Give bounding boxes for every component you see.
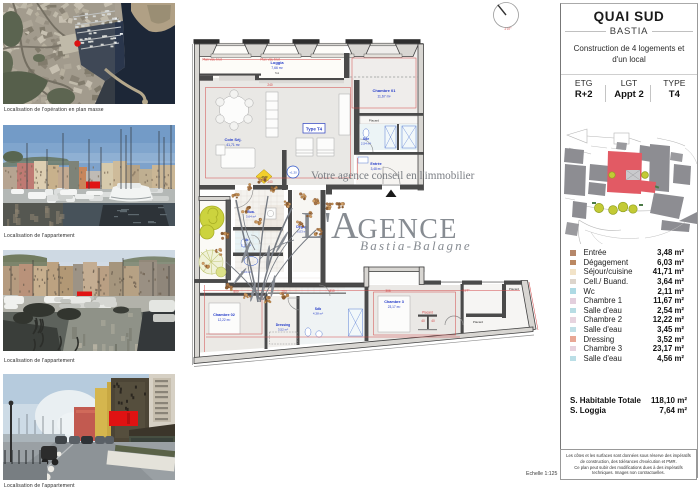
svg-text:306: 306 [385, 289, 391, 293]
svg-text:Sde: Sde [363, 137, 369, 141]
svg-text:7,66 m²: 7,66 m² [271, 66, 283, 70]
svg-text:800: 800 [233, 290, 239, 294]
svg-text:Chambre 3: Chambre 3 [384, 300, 404, 304]
svg-text:Placard: Placard [473, 320, 484, 324]
svg-text:Plan visu brut: Plan visu brut [202, 58, 221, 62]
svg-text:41,71 m²: 41,71 m² [226, 143, 240, 147]
svg-text:Coin Séj.: Coin Séj. [224, 137, 241, 142]
svg-text:Chambre 01: Chambre 01 [373, 88, 397, 93]
svg-text:40: 40 [421, 319, 425, 323]
svg-text:810: 810 [329, 289, 335, 293]
svg-text:40: 40 [431, 319, 435, 323]
svg-text:240: 240 [267, 180, 273, 184]
svg-text:23,17 m²: 23,17 m² [388, 305, 401, 309]
svg-text:Loggia: Loggia [270, 60, 284, 65]
svg-text:Bua.: Bua. [247, 210, 254, 214]
svg-text:Placard: Placard [509, 287, 520, 291]
svg-text:240: 240 [267, 83, 273, 87]
svg-text:3,52 m²: 3,52 m² [278, 328, 288, 332]
svg-text:21'7": 21'7" [462, 289, 469, 293]
svg-text:Type T4: Type T4 [306, 127, 323, 132]
svg-text:Placard: Placard [422, 311, 433, 315]
svg-text:3,64 m²: 3,64 m² [246, 215, 256, 219]
svg-text:Entrée: Entrée [370, 162, 381, 166]
svg-text:4,38 m²: 4,38 m² [313, 312, 323, 316]
svg-text:Chambre 02: Chambre 02 [213, 313, 235, 317]
svg-text:Sdb: Sdb [315, 307, 321, 311]
svg-text:12,22 m²: 12,22 m² [218, 318, 231, 322]
svg-text:Dressing: Dressing [276, 323, 291, 327]
svg-text:Bastia-Balagne: Bastia-Balagne [360, 238, 472, 253]
svg-text:Echelle 1:125: Echelle 1:125 [526, 471, 558, 477]
svg-text:Tek: Tek [275, 71, 280, 75]
svg-text:Placard: Placard [369, 119, 380, 123]
svg-text:Votre agence conseil en l'immo: Votre agence conseil en l'immobilier [311, 170, 475, 182]
svg-text:+1,30: +1,30 [289, 171, 297, 175]
svg-text:11,67 m²: 11,67 m² [377, 95, 391, 99]
svg-text:2,54 m²: 2,54 m² [361, 142, 371, 146]
